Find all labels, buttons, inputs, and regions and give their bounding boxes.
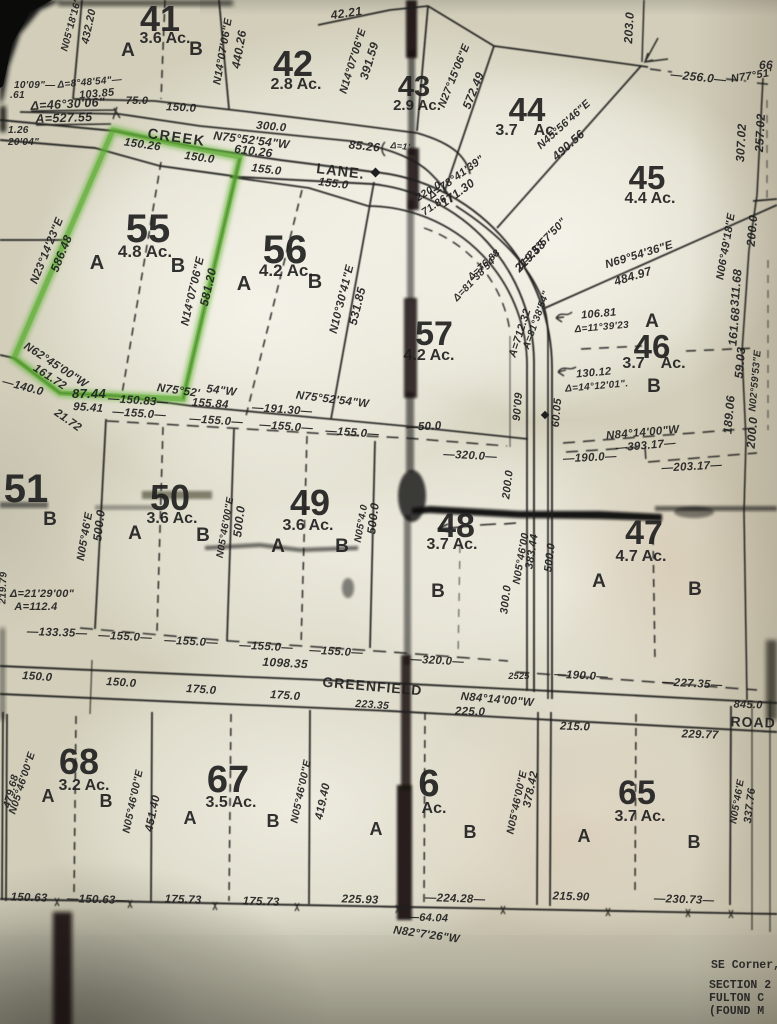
svg-text:A: A bbox=[90, 252, 104, 274]
svg-text:—224.28—: —224.28— bbox=[424, 892, 486, 906]
svg-text:B: B bbox=[267, 811, 280, 831]
svg-text:.61: .61 bbox=[10, 90, 25, 101]
svg-text:4.2 Ac.: 4.2 Ac. bbox=[259, 261, 313, 280]
svg-text:A: A bbox=[121, 40, 135, 61]
svg-text:4.2 Ac.: 4.2 Ac. bbox=[404, 347, 455, 364]
svg-text:75.0: 75.0 bbox=[126, 95, 149, 107]
svg-text:B: B bbox=[196, 525, 210, 546]
svg-text:60.05: 60.05 bbox=[550, 397, 565, 428]
svg-text:257.02: 257.02 bbox=[752, 113, 768, 153]
svg-text:3.7 Ac.: 3.7 Ac. bbox=[427, 536, 478, 553]
svg-text:845.0: 845.0 bbox=[733, 698, 763, 711]
svg-text:175.0: 175.0 bbox=[270, 689, 301, 703]
svg-text:175.73: 175.73 bbox=[242, 895, 280, 908]
svg-text:68: 68 bbox=[59, 741, 99, 782]
svg-text:219.79: 219.79 bbox=[0, 571, 10, 605]
svg-text:3.7 Ac.: 3.7 Ac. bbox=[615, 808, 666, 825]
svg-text:A: A bbox=[128, 523, 142, 544]
svg-text:B: B bbox=[688, 579, 702, 600]
svg-text:215.0: 215.0 bbox=[559, 720, 591, 733]
svg-text:6: 6 bbox=[418, 763, 439, 805]
svg-text:1098.35: 1098.35 bbox=[262, 655, 308, 671]
svg-text:150.63: 150.63 bbox=[10, 891, 48, 904]
svg-text:175.73: 175.73 bbox=[164, 893, 202, 906]
svg-text:B: B bbox=[189, 39, 203, 60]
svg-text:3.6 Ac.: 3.6 Ac. bbox=[140, 30, 191, 47]
svg-text:2525: 2525 bbox=[507, 671, 530, 681]
svg-text:B: B bbox=[43, 509, 57, 530]
svg-text:47: 47 bbox=[625, 514, 663, 552]
svg-text:B: B bbox=[688, 832, 701, 852]
svg-text:150.0: 150.0 bbox=[166, 101, 197, 115]
svg-text:229.77: 229.77 bbox=[680, 728, 719, 741]
svg-text:Ac.: Ac. bbox=[422, 800, 447, 817]
svg-text:51: 51 bbox=[4, 467, 49, 511]
svg-text:175.0: 175.0 bbox=[186, 683, 217, 697]
svg-text:Δ=21'29'00": Δ=21'29'00" bbox=[9, 588, 75, 600]
svg-text:—150.63—: —150.63— bbox=[66, 893, 128, 907]
svg-text:150.0: 150.0 bbox=[106, 676, 137, 690]
svg-text:4.8 Ac.: 4.8 Ac. bbox=[118, 242, 172, 261]
svg-text:223.35: 223.35 bbox=[354, 698, 390, 712]
svg-text:3.6 Ac.: 3.6 Ac. bbox=[147, 510, 198, 527]
svg-text:3.7 Ac.: 3.7 Ac. bbox=[622, 355, 685, 372]
svg-text:A: A bbox=[592, 571, 606, 592]
svg-text:B: B bbox=[464, 822, 477, 842]
svg-text:307.02: 307.02 bbox=[733, 123, 749, 162]
svg-text:90'09: 90'09 bbox=[511, 391, 525, 421]
svg-text:A: A bbox=[370, 819, 383, 839]
svg-text:150.0: 150.0 bbox=[22, 670, 53, 684]
svg-text:95.41: 95.41 bbox=[73, 401, 104, 415]
svg-text:SE Corner,: SE Corner, bbox=[711, 959, 777, 972]
svg-text:B: B bbox=[647, 376, 661, 397]
svg-text:—64.04: —64.04 bbox=[407, 911, 449, 924]
svg-text:—133.35—: —133.35— bbox=[26, 626, 88, 640]
svg-text:1.26: 1.26 bbox=[8, 125, 29, 136]
svg-text:3.6 Ac.: 3.6 Ac. bbox=[283, 517, 334, 534]
svg-text:A=527.55: A=527.55 bbox=[34, 110, 93, 126]
svg-text:215.90: 215.90 bbox=[551, 890, 590, 903]
svg-text:B: B bbox=[335, 536, 349, 557]
svg-text:200.0: 200.0 bbox=[744, 214, 761, 248]
svg-text:A=112.4: A=112.4 bbox=[13, 601, 57, 613]
svg-text:B: B bbox=[171, 255, 185, 277]
svg-text:225.0: 225.0 bbox=[454, 705, 486, 718]
svg-text:B: B bbox=[100, 791, 113, 811]
svg-text:203.0: 203.0 bbox=[621, 12, 637, 45]
svg-text:—230.73—: —230.73— bbox=[653, 893, 715, 907]
svg-text:A: A bbox=[271, 536, 285, 557]
svg-text:ROAD: ROAD bbox=[730, 713, 776, 731]
svg-text:20'04": 20'04" bbox=[7, 137, 39, 148]
svg-text:4.4 Ac.: 4.4 Ac. bbox=[625, 190, 676, 207]
svg-text:(FOUND M: (FOUND M bbox=[709, 1005, 764, 1018]
svg-text:B: B bbox=[431, 581, 445, 602]
svg-text:59.03: 59.03 bbox=[732, 346, 749, 379]
svg-text:3.5 Ac.: 3.5 Ac. bbox=[206, 794, 257, 811]
svg-text:SECTION 2: SECTION 2 bbox=[709, 979, 771, 992]
svg-text:4.7 Ac.: 4.7 Ac. bbox=[616, 548, 667, 565]
svg-text:B: B bbox=[308, 271, 322, 293]
svg-text:A: A bbox=[578, 826, 591, 846]
svg-text:2.9 Ac.: 2.9 Ac. bbox=[393, 97, 441, 114]
svg-text:87.44: 87.44 bbox=[72, 386, 107, 401]
svg-text:200.0: 200.0 bbox=[744, 416, 761, 450]
svg-text:65: 65 bbox=[618, 774, 656, 812]
svg-text:A: A bbox=[237, 273, 251, 295]
svg-text:FULTON C: FULTON C bbox=[709, 992, 764, 1005]
svg-text:A: A bbox=[645, 311, 659, 332]
svg-text:2.8 Ac.: 2.8 Ac. bbox=[271, 76, 322, 93]
svg-text:A: A bbox=[184, 808, 197, 828]
svg-text:A: A bbox=[42, 786, 55, 806]
svg-text:225.93: 225.93 bbox=[340, 893, 379, 906]
svg-text:—50.0: —50.0 bbox=[405, 420, 442, 434]
